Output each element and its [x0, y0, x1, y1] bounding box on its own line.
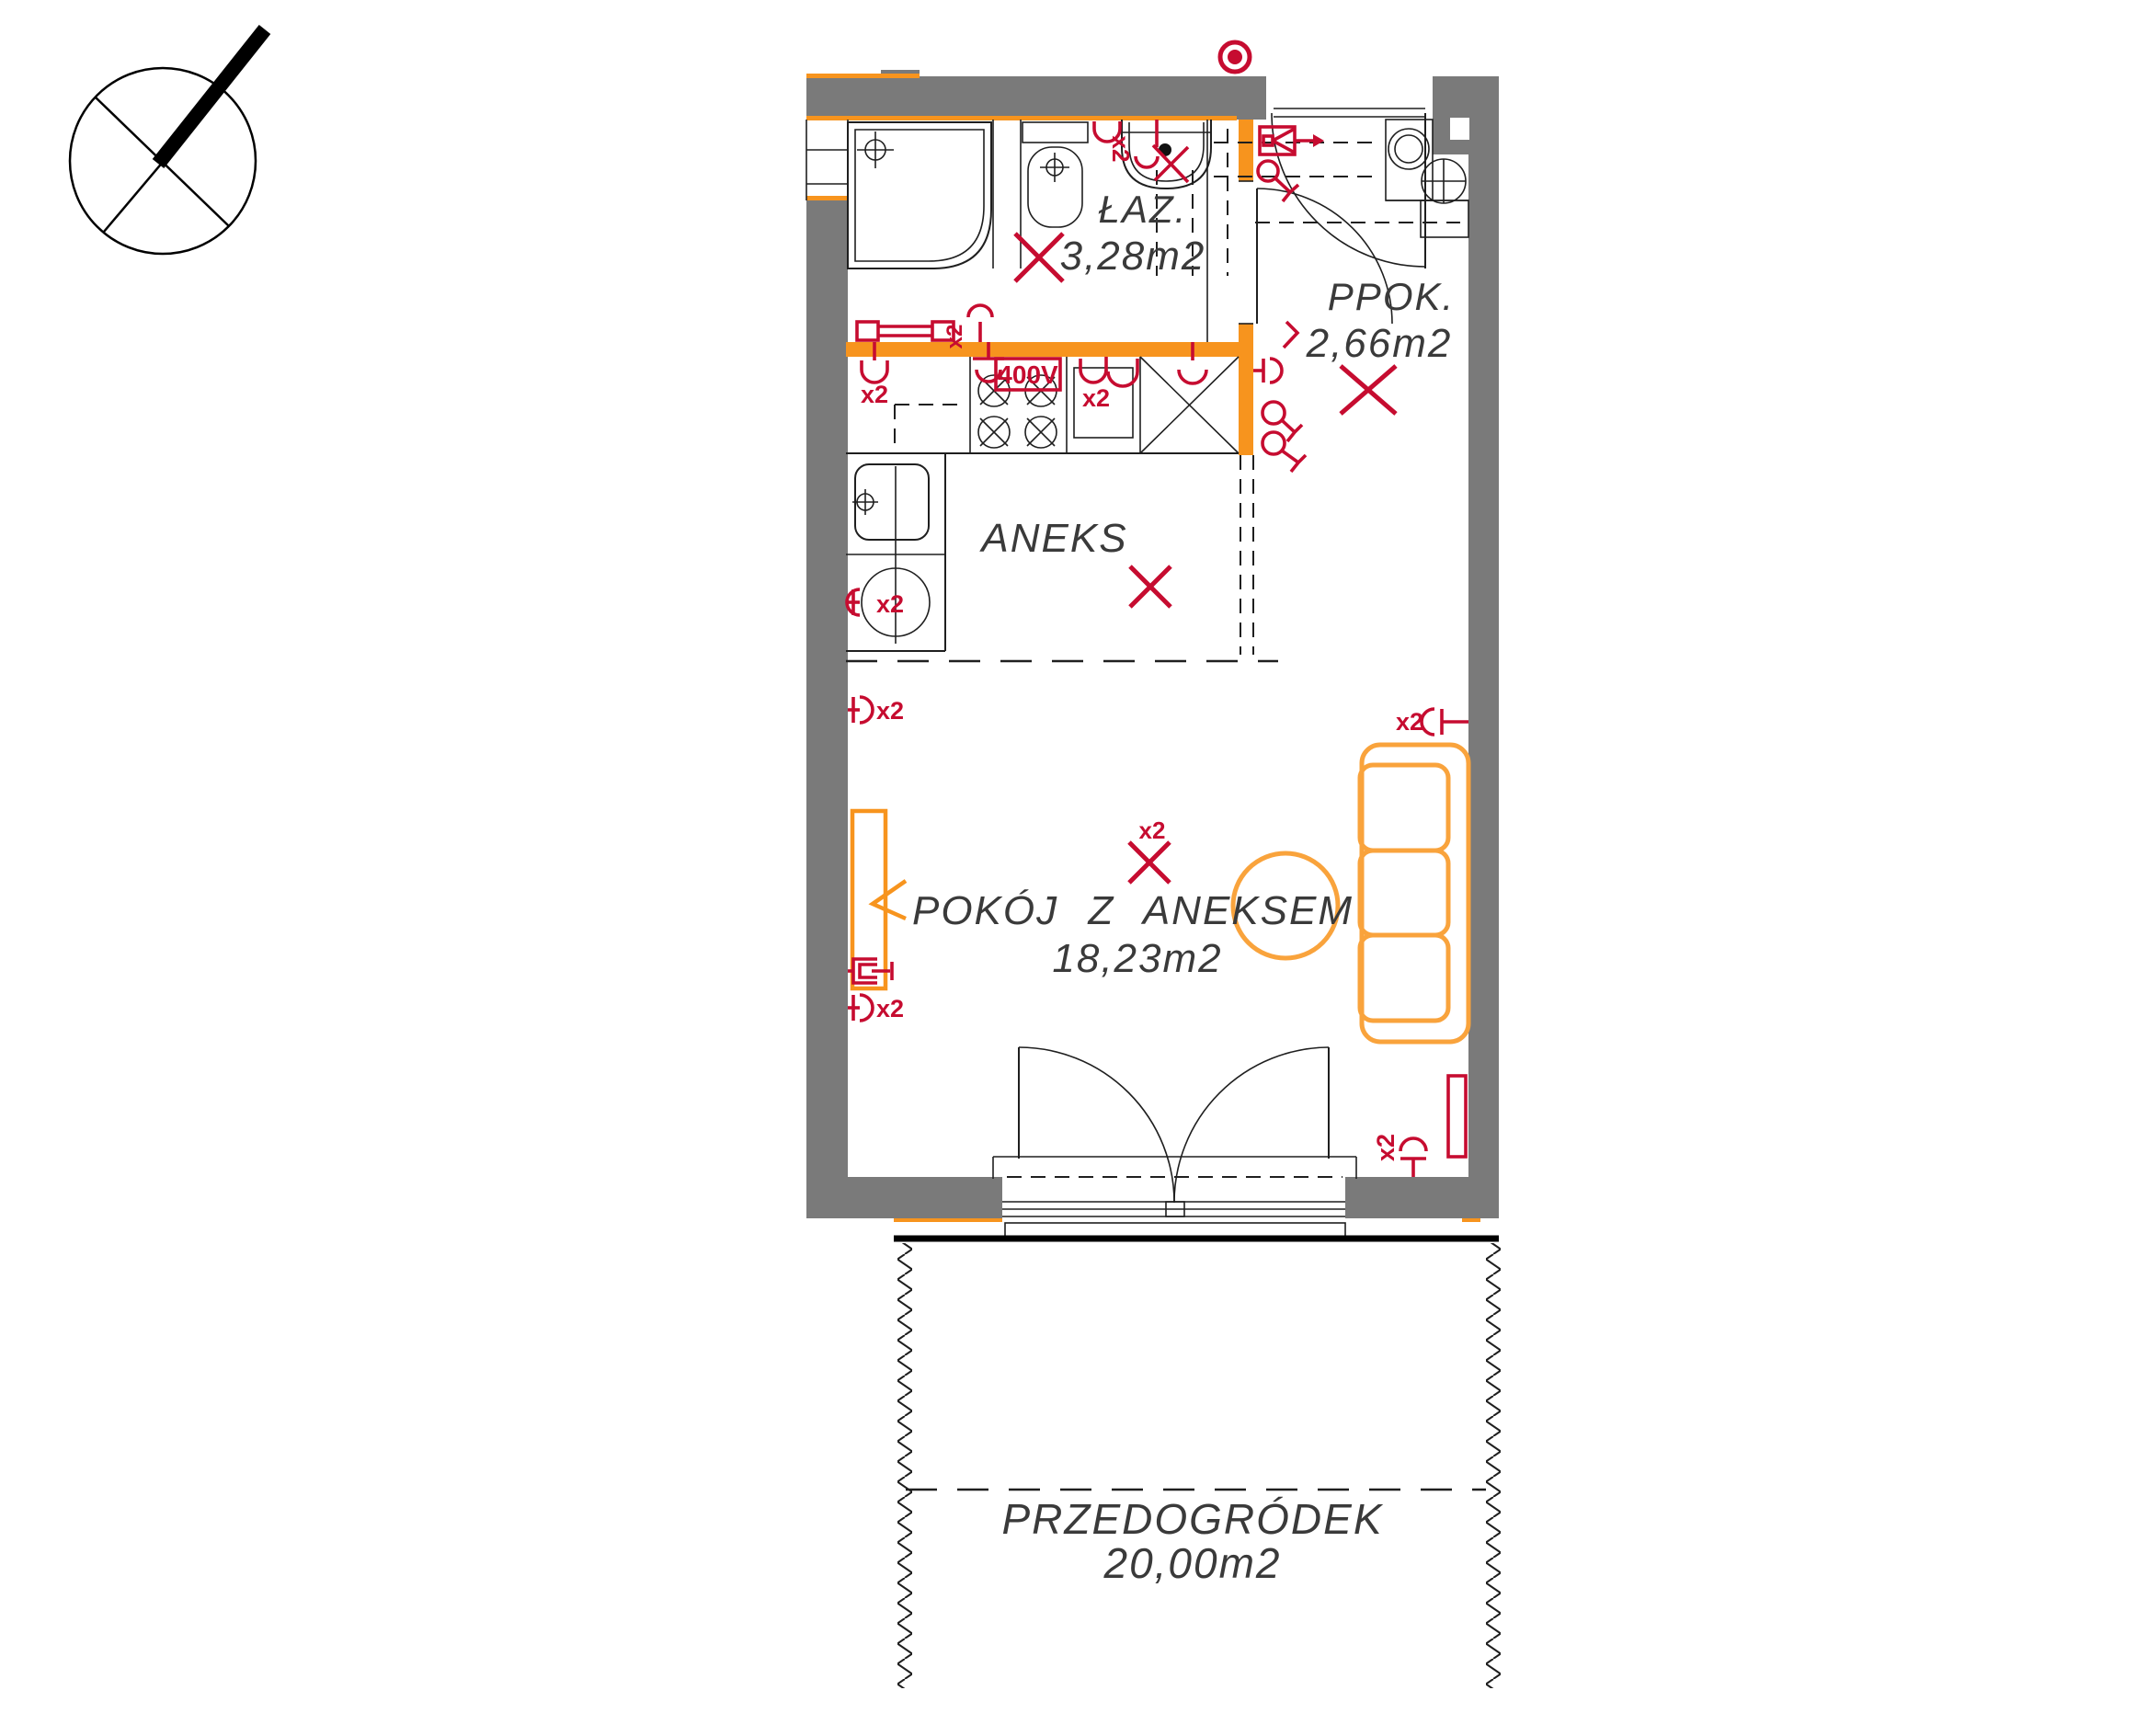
socket-double-left-lower: x2	[848, 995, 904, 1022]
radiator	[1448, 1076, 1466, 1157]
sofa-cushion	[1360, 765, 1448, 851]
socket-count-label: x2	[861, 381, 888, 408]
socket-count-label: x2	[1372, 1134, 1400, 1161]
toilet-cistern	[1023, 122, 1088, 143]
socket-count-label: x2	[1396, 708, 1423, 736]
intercom-symbol	[1260, 127, 1324, 154]
ceiling-light-living: x2	[1129, 817, 1170, 883]
label-kitchen-name: ANEKS	[978, 516, 1127, 561]
socket-count-label: x2	[1082, 384, 1110, 412]
switch-cluster-hallway	[1253, 322, 1306, 472]
label-bathroom-area: 3,28m2	[1060, 234, 1206, 279]
label-hallway-area: 2,66m2	[1306, 321, 1453, 366]
tv-direction-arrow-icon	[873, 881, 906, 919]
washer-symbol	[1395, 135, 1422, 163]
balcony-door-swing-left	[1019, 1047, 1174, 1203]
appliance-enclosure	[1421, 200, 1468, 237]
label-living-name: POKÓJ Z ANEKSEM	[912, 888, 1354, 933]
socket-count-label: x2	[876, 995, 904, 1022]
wall-left	[806, 200, 848, 1177]
stove-power-label: 400V	[998, 360, 1058, 389]
label-bathroom-name: ŁAZ.	[1099, 188, 1188, 231]
garden-boundary-zigzag-left	[897, 1243, 912, 1688]
floor-plan-canvas: x2 x2 x2	[0, 0, 2148, 1736]
sofa-frame	[1362, 745, 1468, 1042]
north-arrow-icon	[158, 29, 265, 164]
socket-count-label: x2	[1107, 136, 1135, 163]
wall-bottom-left	[806, 1177, 1002, 1218]
window-jamb-top	[806, 116, 848, 120]
sofa-cushion	[1360, 851, 1448, 935]
orange-edge-top	[806, 74, 920, 78]
label-hallway-name: PPOK.	[1328, 275, 1455, 318]
orange-edge-bottom-right	[1462, 1218, 1480, 1222]
wall-top-right-corner	[1433, 76, 1499, 154]
front-garden	[894, 1239, 1501, 1688]
socket-double-bottom: x2	[1372, 1134, 1426, 1177]
balcony-door-swing-right	[1174, 1047, 1329, 1203]
garden-boundary-zigzag-right	[1486, 1243, 1501, 1688]
kitchen-tall-cabinet	[1140, 357, 1239, 453]
window-jamb-bottom	[806, 196, 848, 200]
label-living-area: 18,23m2	[1052, 936, 1222, 981]
towel-radiator	[857, 322, 954, 340]
wall-bottom-right	[1345, 1177, 1499, 1218]
label-garden-name: PRZEDOGRÓDEK	[1001, 1495, 1383, 1543]
orange-wall-bath-door-top	[1239, 120, 1253, 181]
socket-count-label: x2	[876, 590, 904, 618]
socket-double-sofa: x2	[1396, 708, 1468, 736]
ceiling-light-kitchen	[1130, 566, 1171, 607]
wall-niche	[1450, 118, 1469, 140]
kitchen-fixtures	[846, 357, 1239, 651]
socket-double-kitchen-sink: x2	[1080, 357, 1137, 412]
socket-washing-machine: x2	[847, 589, 904, 618]
sofa-cushion	[1360, 935, 1448, 1021]
label-garden-area: 20,00m2	[1103, 1539, 1281, 1587]
socket-count-label: x2	[876, 697, 904, 725]
orange-edge-bottom-left	[894, 1218, 1002, 1222]
floor-plan-drawing: x2 x2 x2	[0, 0, 2148, 1736]
socket-double-left-upper: x2	[848, 697, 904, 725]
ceiling-light-bathroom	[1015, 234, 1063, 281]
orange-edge-top-inner	[846, 116, 1237, 120]
wall-top	[806, 76, 1266, 120]
light-count-label: x2	[1139, 817, 1166, 844]
ceiling-light-hallway	[1341, 366, 1396, 414]
riser-point-icon	[1228, 50, 1242, 64]
shower-tray	[848, 122, 991, 268]
switch-entrance	[1258, 161, 1298, 201]
socket-count-label: x2	[943, 325, 967, 349]
room-labels: ŁAZ. 3,28m2 PPOK. 2,66m2 ANEKS POKÓJ Z A…	[912, 188, 1455, 1587]
north-compass	[70, 29, 265, 254]
wall-right	[1468, 154, 1499, 1218]
